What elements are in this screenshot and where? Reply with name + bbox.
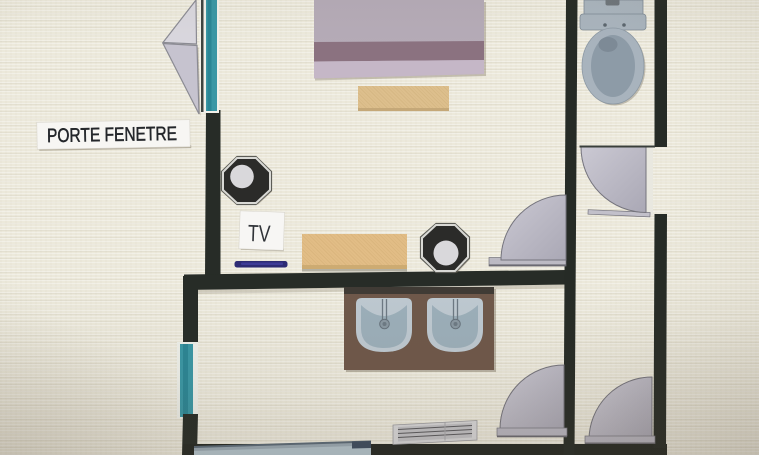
svg-text:TV: TV bbox=[247, 220, 271, 247]
svg-text:PORTE FENETRE: PORTE FENETRE bbox=[47, 123, 177, 147]
